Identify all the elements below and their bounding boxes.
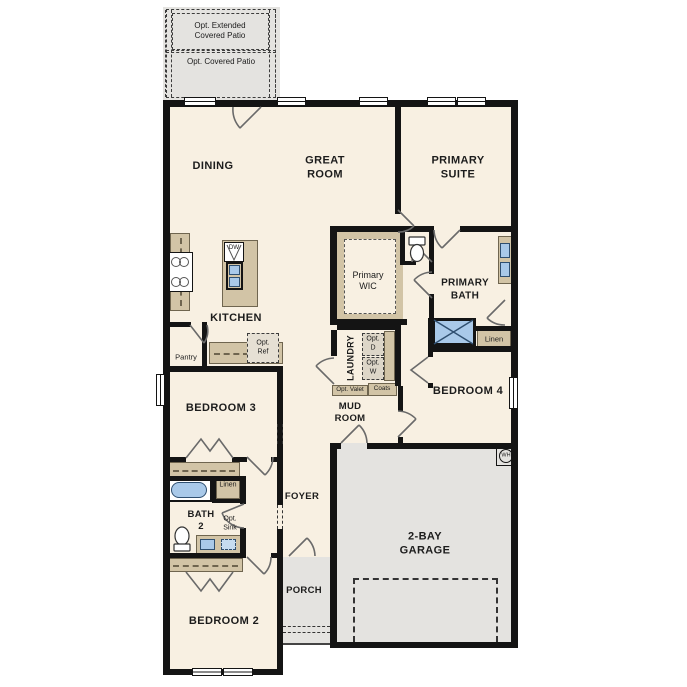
bath2-sink	[200, 539, 215, 550]
wall	[428, 346, 511, 352]
room-label-kitchen: KITCHEN	[210, 312, 262, 326]
wall	[240, 528, 246, 555]
wall	[429, 265, 434, 274]
wall	[163, 366, 283, 372]
porch-edge-line	[277, 643, 337, 645]
room-label-bedroom-3: BEDROOM 3	[186, 402, 256, 416]
primary-sink-1	[500, 243, 510, 258]
bathtub	[166, 478, 212, 502]
label-opt-dryer: Opt. D	[366, 335, 379, 353]
room-label-garage: 2-BAY GARAGE	[400, 530, 451, 558]
window	[223, 668, 253, 676]
room-label-bath-2: BATH 2	[188, 509, 215, 533]
window	[184, 97, 216, 106]
room-label-primary-bath: PRIMARY BATH	[441, 278, 489, 303]
patio-post-strip-right	[269, 10, 276, 97]
bath2-opt-sink	[221, 539, 236, 550]
wall	[460, 226, 511, 232]
room-label-laundry: LAUNDRY	[345, 335, 356, 381]
wall	[331, 330, 337, 356]
label-dishwasher: DW	[229, 244, 240, 252]
label-linen-hall: Linen	[485, 334, 503, 343]
patio-post-strip-left	[165, 10, 172, 97]
room-label-bedroom-2: BEDROOM 2	[189, 615, 259, 629]
wall	[163, 476, 240, 481]
label-opt-valet: Opt. Valet	[336, 386, 364, 394]
label-opt-sink: Opt. Sink	[223, 515, 237, 533]
wall	[474, 326, 511, 331]
wall	[212, 478, 216, 501]
wall	[271, 457, 277, 462]
label-opt-washer: Opt. W	[366, 359, 379, 377]
label-linen-bath2: Linen	[219, 482, 236, 491]
wall	[163, 322, 191, 327]
room-label-primary-wic: Primary WIC	[353, 270, 384, 293]
foyer-strip-floor	[283, 372, 337, 557]
wall	[330, 642, 518, 648]
wall	[429, 232, 434, 265]
label-coats: Coats	[374, 385, 390, 393]
label-extended-patio: Opt. Extended Covered Patio	[194, 21, 245, 41]
cased-opening	[277, 424, 283, 444]
label-water-heater: WH	[501, 453, 510, 460]
window	[277, 97, 306, 106]
wall	[511, 100, 518, 648]
wall	[398, 386, 403, 411]
window	[156, 374, 165, 406]
wall	[232, 457, 247, 462]
room-label-bedroom-4: BEDROOM 4	[433, 385, 503, 399]
laundry-cabinet-strip	[384, 331, 395, 381]
wall	[163, 553, 246, 558]
wall	[395, 107, 401, 214]
wall	[398, 437, 403, 443]
wall	[277, 529, 283, 675]
window	[457, 97, 486, 106]
wall	[428, 318, 433, 346]
room-label-great-room: GREAT ROOM	[305, 154, 345, 182]
room-label-dining: DINING	[193, 160, 234, 174]
cased-opening	[277, 505, 283, 529]
floor-plan: DINING GREAT ROOM PRIMARY SUITE KITCHEN …	[0, 0, 687, 687]
window	[509, 377, 518, 409]
room-label-primary-suite: PRIMARY SUITE	[431, 154, 484, 182]
room-label-mud-room: MUD ROOM	[335, 401, 366, 425]
wall	[271, 553, 283, 558]
wall	[367, 443, 518, 449]
wall	[202, 322, 207, 371]
wall	[429, 294, 434, 318]
porch-step-dashes	[283, 626, 330, 633]
island-sink	[226, 262, 243, 290]
wall	[337, 324, 401, 330]
primary-shower	[432, 318, 476, 346]
label-covered-patio: Opt. Covered Patio	[187, 57, 255, 67]
wall	[330, 443, 337, 648]
window	[427, 97, 456, 106]
room-label-foyer: FOYER	[285, 491, 319, 503]
label-opt-refrigerator: Opt. Ref	[256, 339, 269, 357]
wall	[400, 261, 416, 265]
cooktop	[167, 252, 193, 292]
wall	[337, 443, 341, 449]
wall	[163, 457, 186, 462]
patio-divider	[166, 50, 276, 53]
garage-door-outline	[353, 578, 498, 642]
wall	[330, 226, 434, 232]
wall	[330, 226, 337, 325]
window	[192, 668, 222, 676]
primary-sink-2	[500, 262, 510, 277]
wall	[395, 324, 401, 386]
bedroom2-closet-shelf	[168, 558, 243, 572]
room-label-porch: PORCH	[286, 585, 322, 597]
window	[359, 97, 388, 106]
wall	[428, 352, 433, 357]
wall	[212, 499, 246, 503]
room-label-pantry: Pantry	[175, 352, 197, 361]
